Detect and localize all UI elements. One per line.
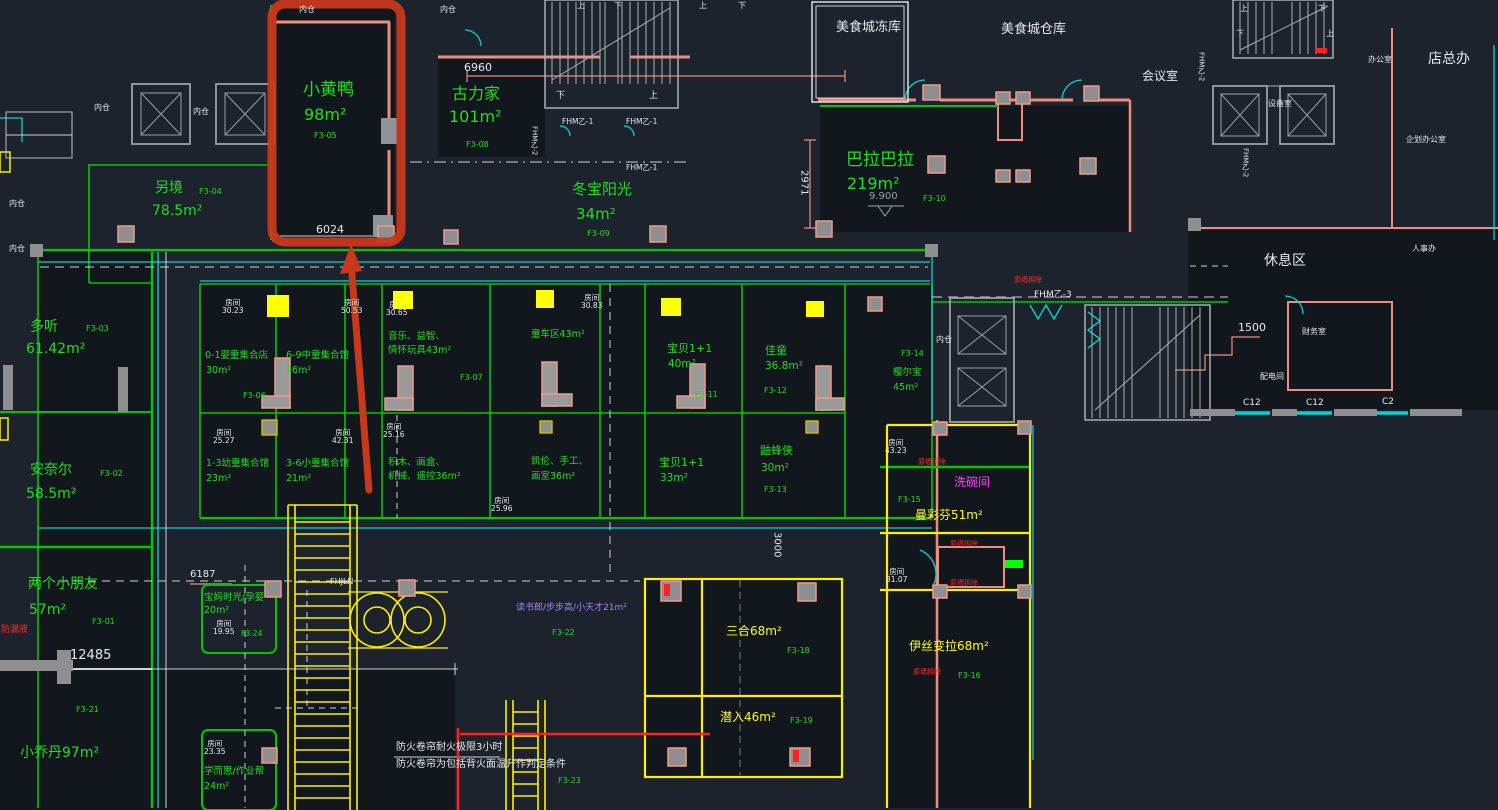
shop-area: 33m² <box>660 473 688 484</box>
demolish-note: 原墙拆除 <box>918 459 946 466</box>
dimension: 6024 <box>316 224 344 236</box>
room-area-tag: 房间23.35 <box>204 740 225 756</box>
room-label-freezer: 美食城冻库 <box>836 21 901 35</box>
shop-name: 三合68m² <box>726 625 782 638</box>
leak-note: 防漏液 <box>1 626 28 635</box>
room-area-tag: 房间19.95 <box>213 620 234 636</box>
cad-floorplan-canvas[interactable]: 小黄鸭 98m² F3-05 古力家 101m² F3-08 冬宝阳光 34m²… <box>0 0 1498 810</box>
storage-label: 内仓 <box>299 6 315 14</box>
shop-code: F3-21 <box>76 706 99 714</box>
room-area-tag: 房间43.23 <box>885 439 906 455</box>
shop-code: F3-08 <box>466 141 489 149</box>
shop-name: 小乔丹97m² <box>20 746 99 761</box>
fire-door-code: FHM乙-2 <box>530 126 537 155</box>
shop-name: 另境 <box>155 181 183 196</box>
room-label-equipment: 设备室 <box>1268 100 1292 108</box>
shop-code: F3-14 <box>901 350 924 358</box>
highlight-arrow-head <box>340 244 362 274</box>
shop-code: F3-22 <box>552 629 575 637</box>
shop-area: 画室36m² <box>531 472 575 482</box>
room-label-finance: 财务室 <box>1302 328 1326 336</box>
shop-name: 小黄鸭 <box>303 82 354 100</box>
room-area-tag: 房间25.96 <box>491 497 512 513</box>
shop-name: 凯伦、手工、 <box>531 457 588 467</box>
shop-name: 伊丝变拉68m² <box>909 640 989 653</box>
shop-area: 101m² <box>449 109 502 126</box>
storage-label: 内仓 <box>440 6 456 14</box>
shop-code: F3-06 <box>243 392 266 400</box>
shop-area: 情怀玩具43m² <box>388 346 451 356</box>
shop-area: 40m² <box>668 359 696 370</box>
shop-code: F3-12 <box>764 387 787 395</box>
room-label-rest-area: 休息区 <box>1264 254 1306 269</box>
fire-shutter-code: FHJLN <box>330 578 353 586</box>
room-label-warehouse: 美食城仓库 <box>1001 23 1066 37</box>
shop-name: 两个小朋友 <box>28 577 98 592</box>
shop-name: 古力家 <box>452 86 500 103</box>
shop-code: F3-09 <box>587 230 610 238</box>
shop-code: F3-23 <box>558 777 581 785</box>
shop-area: 78.5m² <box>152 204 202 219</box>
shop-area: 57m² <box>29 603 66 618</box>
plan-linework <box>0 0 1498 810</box>
shop-code: F3-13 <box>764 486 787 494</box>
shop-name: 多听 <box>30 320 58 335</box>
room-label-store-office: 店总办 <box>1428 52 1470 67</box>
shop-area: 21m² <box>286 474 311 484</box>
shop-name: 鼬蜂侠 <box>760 445 793 457</box>
shop-area: 58.5m² <box>26 487 76 502</box>
shop-code: F3-01 <box>92 618 115 626</box>
shop-code: F3-16 <box>958 672 981 680</box>
stair-up-label: 上 <box>577 2 585 10</box>
shop-area: 23m² <box>206 474 231 484</box>
elevation-level: 9.900 <box>869 192 898 203</box>
room-area-tag: 房间25.27 <box>213 429 234 445</box>
room-label-office: 办公室 <box>1368 56 1392 64</box>
dimension: 3000 <box>771 532 782 557</box>
storage-label: 内仓 <box>936 336 952 344</box>
stair-up-label: 上 <box>649 92 658 101</box>
shop-area: 61.42m² <box>26 342 85 357</box>
room-label-hr: 人事办 <box>1412 245 1436 253</box>
demolish-note: 原墙拆除 <box>913 669 941 676</box>
room-label-meeting: 会议室 <box>1142 70 1178 83</box>
room-label-planning: 企划办公室 <box>1406 136 1446 144</box>
room-area-tag: 房间30.65 <box>386 301 407 317</box>
shop-area: 20m² <box>204 606 229 616</box>
room-label-power: 配电间 <box>1260 373 1284 381</box>
stair-down-label: 下 <box>738 2 746 10</box>
shop-name: 安奈尔 <box>30 463 72 478</box>
shop-name: 3-6小童集合馆 <box>286 459 349 469</box>
shop-name: 1-3幼童集合馆 <box>206 459 269 469</box>
fire-door-code: FHM乙-3 <box>1034 291 1072 300</box>
shop-name: 佳童 <box>765 345 787 357</box>
shop-name: 童车区43m² <box>531 330 585 340</box>
shop-name: 冬宝阳光 <box>572 182 632 198</box>
shop-name: 樱尔宝 <box>893 368 922 378</box>
room-area-tag: 房间25.16 <box>383 423 404 439</box>
stair-up-label: 上 <box>1326 30 1334 38</box>
fire-door-code: FHM乙-1 <box>626 164 657 172</box>
fire-door-code: FHM乙-1 <box>562 118 593 126</box>
storage-label: 内仓 <box>9 245 25 253</box>
demolish-note: 原墙拆除 <box>1014 277 1042 284</box>
demolish-note: 原墙拆除 <box>950 541 978 548</box>
stair-down-label: 下 <box>1236 30 1244 38</box>
fire-note: 防火卷帘耐火极限3小时 <box>396 743 502 754</box>
shop-area: 24m² <box>204 782 229 792</box>
shop-area: 30m² <box>761 463 789 474</box>
dimension: 1500 <box>1238 322 1266 334</box>
shop-code: F3-04 <box>199 188 222 196</box>
fire-door-code: FHM乙-2 <box>1197 52 1204 81</box>
fire-door-code: FHM乙-2 <box>1241 148 1248 177</box>
shop-area: 34m² <box>576 207 616 223</box>
shop-code: F3-10 <box>923 195 946 203</box>
shop-code: F3-24 <box>241 630 262 638</box>
shop-area: 45m² <box>893 383 918 393</box>
storage-label: 内仓 <box>94 104 110 112</box>
shop-name: 音乐、益智、 <box>388 332 445 342</box>
room-area-tag: 房间50.53 <box>341 299 362 315</box>
fire-door-code: FHM乙-1 <box>626 118 657 126</box>
window-code: C12 <box>1306 399 1324 408</box>
shop-code: F3-18 <box>787 647 810 655</box>
stair-up-label: 上 <box>699 2 707 10</box>
room-area-tag: 房间30.83 <box>581 294 602 310</box>
shop-area: 26m² <box>286 366 311 376</box>
storage-label: 内仓 <box>9 200 25 208</box>
shop-name: 学而思/作业帮 <box>204 767 264 777</box>
storage-label: 内仓 <box>193 108 209 116</box>
dimension: 2971 <box>798 170 809 195</box>
shop-area: 机械、遥控36m² <box>388 472 461 482</box>
stair-down-label: 下 <box>614 2 622 10</box>
shop-area: 98m² <box>304 107 346 124</box>
shop-name: 曼彩芬51m² <box>915 509 983 522</box>
fire-note: 防火卷帘为包括背火面温升作判定条件 <box>396 760 566 771</box>
shop-code: F3-11 <box>695 391 718 399</box>
room-label-dishwashing: 洗碗间 <box>954 476 990 489</box>
shop-code: F3-07 <box>460 374 483 382</box>
window-code: C12 <box>1243 399 1261 408</box>
shop-code: F3-03 <box>86 325 109 333</box>
stair-down-label: 下 <box>1318 5 1326 13</box>
shop-code: F3-19 <box>790 717 813 725</box>
shop-name: 潜入46m² <box>720 711 776 724</box>
dimension: 6960 <box>464 62 492 74</box>
dimension: 6187 <box>190 570 215 581</box>
shop-name: 0-1婴童集合店 <box>205 351 268 361</box>
shop-name: 宝贝1+1 <box>667 343 712 355</box>
room-area-tag: 房间31.07 <box>886 568 907 584</box>
shop-name: 巴拉巴拉 <box>846 152 914 170</box>
stair-down-label: 下 <box>556 92 565 101</box>
shop-code: F3-05 <box>314 132 337 140</box>
room-area-tag: 房间42.31 <box>332 429 353 445</box>
shop-code: F3-02 <box>100 470 123 478</box>
demolish-note: 原墙拆除 <box>950 580 978 587</box>
shop-area: 36.8m² <box>765 361 803 372</box>
shop-name: 积木、画盒、 <box>388 458 445 468</box>
dimension: 12485 <box>70 649 111 663</box>
room-area-tag: 房间30.23 <box>222 299 243 315</box>
window-code: C2 <box>1382 398 1394 407</box>
stair-up-label: 上 <box>1240 5 1248 13</box>
shop-name: 宝贝1+1 <box>659 457 704 469</box>
shop-name: 6-9中童集合馆 <box>286 351 349 361</box>
shop-name: 读书郎/步步高/小天才21m² <box>516 604 627 613</box>
shop-code: F3-15 <box>898 496 921 504</box>
shop-name: 宝妈时光/孕婴 <box>204 593 264 603</box>
shop-area: 30m² <box>206 366 231 376</box>
